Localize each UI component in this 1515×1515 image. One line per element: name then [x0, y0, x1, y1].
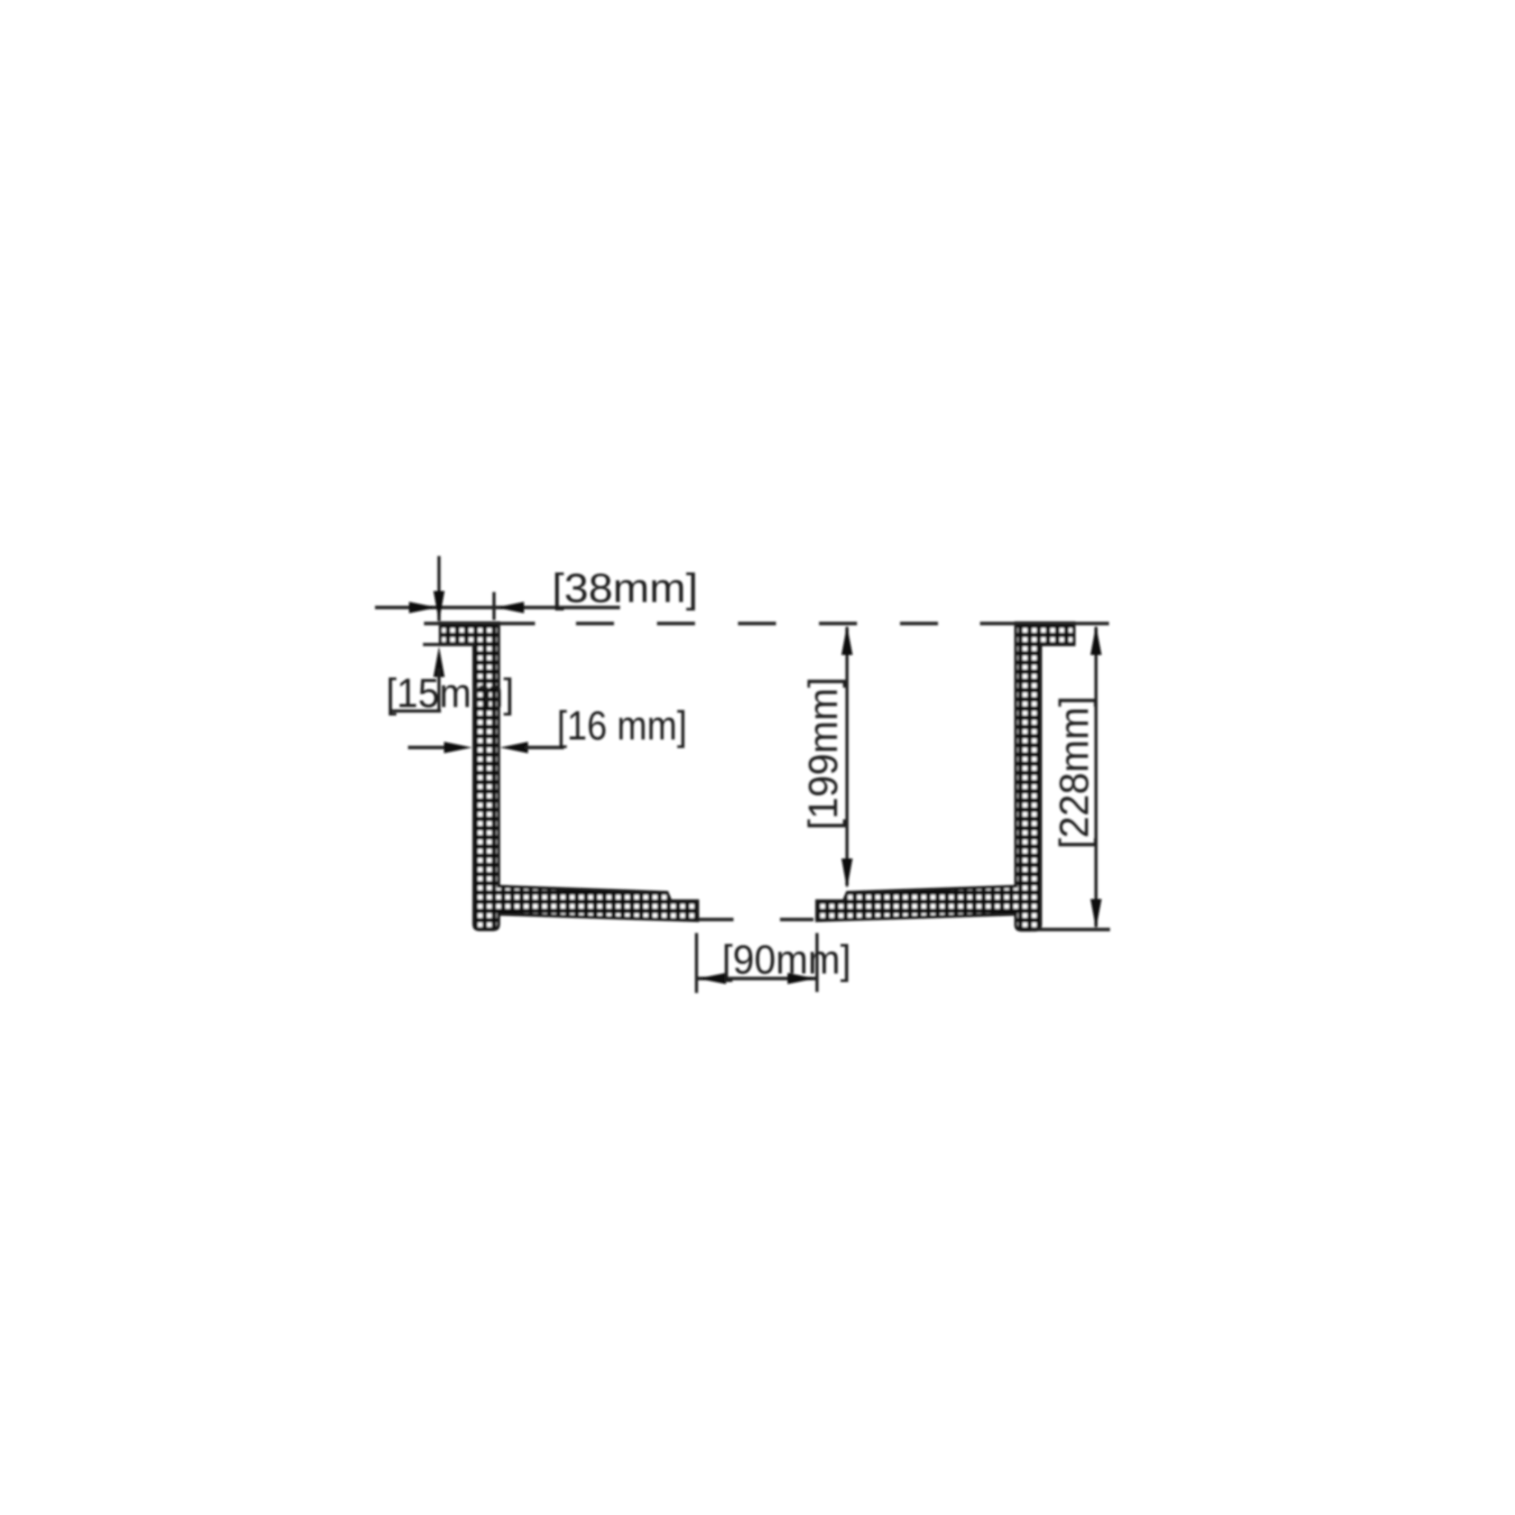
svg-text:[38mm]: [38mm]	[552, 565, 698, 611]
svg-text:[15mm]: [15mm]	[386, 670, 514, 716]
svg-text:[228mm]: [228mm]	[1051, 696, 1097, 849]
svg-text:[16 mm]: [16 mm]	[557, 703, 687, 749]
svg-text:[199mm]: [199mm]	[800, 677, 846, 830]
svg-text:[90mm]: [90mm]	[722, 937, 851, 983]
